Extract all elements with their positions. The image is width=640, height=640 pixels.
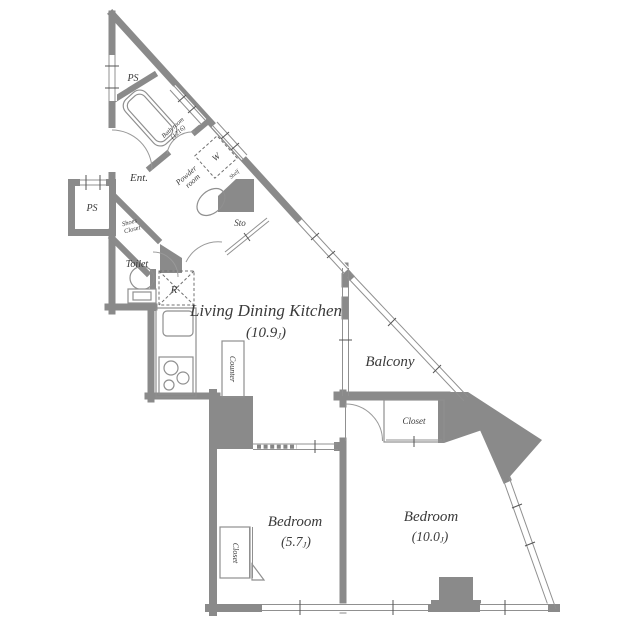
label-bedroom10: Bedroom <box>404 509 459 525</box>
plan-background <box>0 0 640 640</box>
door-gap-entrance <box>107 128 117 172</box>
label-bedroom10-size: (10.0J) <box>412 529 449 545</box>
label-bedroom57-size: (5.7J) <box>281 534 311 550</box>
label-ps-top: PS <box>126 73 138 84</box>
label-toilet: Toilet <box>126 259 149 270</box>
floor-plan: PS PS Bath room (1216) Ent. W Powder roo… <box>0 0 640 640</box>
label-ps-left: PS <box>85 203 97 214</box>
wall-pillar-base <box>431 600 481 612</box>
wall-block <box>217 396 253 449</box>
label-closet-bedroom57: Closet <box>231 543 240 564</box>
label-bedroom57: Bedroom <box>268 514 323 530</box>
label-counter: Counter <box>228 356 237 383</box>
label-closet-bedroom10: Closet <box>402 416 426 426</box>
label-fridge: R <box>170 284 178 296</box>
label-ldk: Living Dining Kitchen <box>189 301 342 320</box>
label-balcony: Balcony <box>365 354 414 370</box>
label-entrance: Ent. <box>129 172 148 184</box>
label-storage: Sto <box>234 218 246 228</box>
